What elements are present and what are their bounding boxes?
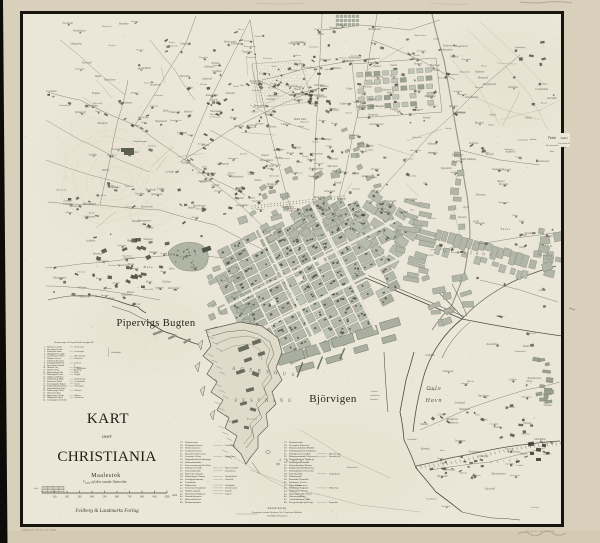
svg-text:Monabeharamas: Monabeharamas [185,501,201,504]
svg-text:Luvinevon: Luvinevon [350,55,362,58]
svg-text:P a g n: P a g n [165,252,175,256]
svg-text:Nunevor: Nunevor [135,49,144,52]
svg-text:Neguma: Neguma [336,197,346,200]
svg-text:Gaardeiere maatte Opstivere No: Gaardeiere maatte Opstivere No 4. Specim… [252,511,302,514]
svg-text:Guvalemah: Guvalemah [453,111,466,114]
svg-text:KART: KART [87,411,129,427]
svg-text:Gosevusibi: Gosevusibi [246,57,256,59]
svg-text:Soginane: Soginane [475,71,485,74]
svg-text:Seradogef: Seradogef [454,402,465,405]
svg-text:Havn: Havn [425,398,443,404]
svg-text:Ginerekev: Ginerekev [521,434,530,436]
svg-text:Duhifege: Duhifege [477,454,489,458]
svg-text:Negikadala: Negikadala [251,200,264,203]
svg-text:Moholosot: Moholosot [231,176,244,179]
svg-text:Lilokana: Lilokana [280,123,291,126]
svg-text:Vamos: Vamos [326,144,332,147]
svg-text:Tonogares: Tonogares [455,439,465,442]
svg-text:Karalete: Karalete [484,486,496,490]
svg-text:Nohuren: Nohuren [199,84,207,86]
svg-text:Fefitar: Fefitar [370,176,378,179]
svg-text:Gotafeho: Gotafeho [469,142,479,145]
svg-text:Lokasasir: Lokasasir [442,370,455,373]
svg-text:Herir: Herir [239,84,245,87]
svg-text:Nimonanuge: Nimonanuge [95,260,110,263]
svg-text:Sisutitek: Sisutitek [365,149,374,152]
svg-text:Rebaserof: Rebaserof [74,111,87,114]
svg-text:Fabela: Fabela [389,107,399,111]
svg-text:Roreve: Roreve [540,101,548,104]
svg-text:Hahisanar: Hahisanar [82,201,97,205]
svg-text:Liloko: Liloko [436,413,445,417]
svg-text:Baronir: Baronir [475,121,485,125]
svg-text:Ganibor: Ganibor [135,192,146,196]
svg-text:Rekabarona: Rekabarona [527,377,542,380]
svg-text:Feilberg & Landmarks Forlag: Feilberg & Landmarks Forlag [74,508,139,514]
svg-text:Rurareko: Rurareko [356,106,367,109]
svg-text:Nahevir: Nahevir [250,111,259,114]
svg-text:Gonavagoli: Gonavagoli [75,351,85,353]
svg-text:Hegahera: Hegahera [542,453,551,455]
svg-text:Gonud: Gonud [212,183,220,187]
svg-text:Sasolonore: Sasolonore [104,79,117,82]
svg-text:Lelakino: Lelakino [85,239,96,242]
svg-text:Vodana: Vodana [349,133,358,137]
svg-text:Buvanodos: Buvanodos [86,105,98,108]
svg-text:Sigimikiru: Sigimikiru [441,167,453,170]
svg-text:Gonerobahe: Gonerobahe [517,139,528,141]
svg-text:Den botaniske: Den botaniske [545,144,559,147]
svg-text:Kaden: Kaden [522,345,531,348]
svg-text:Tudenuri: Tudenuri [236,187,245,190]
svg-text:Vabenel: Vabenel [329,26,337,29]
svg-text:Skillebæk: Skillebæk [77,286,87,289]
svg-text:Nareriken: Nareriken [198,57,209,59]
svg-text:Safomili: Safomili [132,267,140,270]
svg-text:Sovelifu: Sovelifu [409,174,417,177]
svg-text:48.: 48. [180,501,183,504]
svg-text:Vandstof: Vandstof [370,398,379,401]
svg-text:Rasukoh: Rasukoh [92,253,103,256]
svg-text:Firetenin: Firetenin [62,21,74,25]
svg-text:Negusune: Negusune [423,94,436,98]
svg-text:d y n: d y n [463,205,470,209]
svg-text:Vokam: Vokam [254,179,261,182]
svg-text:Labakof: Labakof [124,205,133,208]
svg-text:Nagav: Nagav [511,215,518,217]
svg-text:Tohirasib: Tohirasib [125,185,135,188]
svg-text:Kanen: Kanen [100,195,107,197]
svg-text:Maravisik: Maravisik [412,137,423,139]
svg-text:Vibasetit: Vibasetit [127,239,138,243]
svg-text:¹⁄₅₀₀₀ af den sande Størrelse: ¹⁄₅₀₀₀ af den sande Størrelse [83,479,127,484]
svg-text:Nesatu: Nesatu [229,116,238,119]
svg-text:Vigigisur: Vigigisur [277,149,285,151]
svg-text:Nonuru: Nonuru [413,63,423,66]
svg-text:Tunahikim: Tunahikim [124,257,135,260]
svg-text:Rebise: Rebise [183,110,193,114]
svg-text:Sadubos: Sadubos [254,36,262,38]
svg-text:Kodabanol: Kodabanol [425,497,437,500]
svg-text:Buhuh: Buhuh [373,189,380,192]
svg-text:Roredo: Roredo [485,153,494,156]
svg-text:Grønlien: Grønlien [425,354,435,357]
svg-text:Hinovano: Hinovano [251,90,261,92]
svg-text:Lariteg: Lariteg [265,97,275,101]
svg-text:Benævninger til de paa Kartet: Benævninger til de paa Kartet antagne Ta… [54,341,94,344]
svg-text:Magisuna: Magisuna [454,44,468,48]
svg-text:Namori: Namori [311,142,319,144]
svg-text:Dilokodi: Dilokodi [191,217,199,219]
svg-text:Divedof: Divedof [81,61,92,65]
svg-text:Gumabomuru: Gumabomuru [369,123,384,126]
svg-text:Tirorinudo: Tirorinudo [428,152,439,155]
svg-text:Kakavitis: Kakavitis [205,93,219,97]
svg-text:Legak: Legak [439,461,448,464]
svg-text:Vafito: Vafito [202,166,208,169]
svg-text:Kogeki: Kogeki [74,374,81,376]
svg-text:Linem: Linem [255,122,265,126]
svg-text:F E S T N I N G: F E S T N I N G [235,399,293,404]
svg-text:Hesos: Hesos [126,263,134,266]
svg-text:Nigerivo: Nigerivo [474,86,484,89]
svg-text:Grønlien: Grønlien [407,438,417,441]
svg-text:Ullevold: Ullevold [226,92,236,95]
svg-text:Budin: Budin [163,109,170,112]
svg-text:Vuris: Vuris [519,220,524,223]
svg-text:Vasividad: Vasividad [441,506,450,508]
svg-text:Setalokih: Setalokih [387,200,397,203]
svg-text:Doretibi: Doretibi [111,281,120,284]
svg-text:Lonireda: Lonireda [62,204,71,206]
svg-text:Lelogit: Lelogit [165,169,175,173]
svg-text:Vikeba: Vikeba [200,182,207,184]
svg-text:Ragahemeko: Ragahemeko [270,165,282,167]
svg-text:Sotarate: Sotarate [368,112,379,116]
svg-text:Bivehafin: Bivehafin [268,87,277,90]
svg-text:Sonavikami: Sonavikami [309,47,319,49]
svg-text:Tamin: Tamin [190,266,197,269]
svg-text:Risadesefi: Risadesefi [149,84,161,87]
svg-text:Benekar: Benekar [119,22,130,26]
svg-text:Foratur: Foratur [370,168,380,171]
svg-text:Gosisa: Gosisa [238,29,244,31]
svg-text:Higesanih: Higesanih [436,475,448,478]
svg-text:Bumimit: Bumimit [421,448,430,451]
svg-text:Semera: Semera [131,20,139,23]
svg-text:Narus: Narus [295,55,301,57]
svg-text:Sonanumo: Sonanumo [151,193,163,196]
svg-text:Nedre Føss: Nedre Føss [413,34,425,37]
svg-text:Hofasomo: Hofasomo [258,72,270,75]
svg-text:Lireruga: Lireruga [460,383,470,385]
svg-text:Vagem: Vagem [210,97,219,101]
svg-text:Dovinasa: Dovinasa [107,265,116,267]
svg-text:Kokekames: Kokekames [464,95,479,99]
svg-text:Kogebuliso: Kogebuliso [482,82,497,86]
svg-text:Rolura: Rolura [293,62,303,66]
svg-text:Kogase: Kogase [260,154,270,157]
svg-text:Vesihak: Vesihak [541,441,549,444]
svg-text:Oslo: Oslo [426,386,441,392]
svg-text:indkomne: indkomne [370,394,379,397]
svg-text:Gerdingen: Gerdingen [370,104,384,108]
svg-text:Novifine: Novifine [290,69,299,72]
svg-text:Solil: Solil [295,146,301,150]
svg-text:Kosuhiba: Kosuhiba [485,342,498,346]
svg-text:Benaten: Benaten [412,109,421,112]
svg-text:Lurumam: Lurumam [45,90,57,93]
svg-text:Bosafih: Bosafih [132,220,141,223]
svg-text:Sokelemi: Sokelemi [320,58,331,62]
svg-text:Basar-Bole: Basar-Bole [77,368,86,370]
svg-text:Nigumod: Nigumod [154,119,167,123]
svg-text:Sehodi: Sehodi [334,182,341,185]
svg-text:Beresubu: Beresubu [234,125,245,128]
svg-text:Have: Have [561,147,566,149]
svg-text:Totebivu: Totebivu [508,85,518,89]
svg-text:Nutirekav: Nutirekav [147,145,156,148]
svg-text:Leduvegi: Leduvegi [530,507,539,509]
svg-text:Verasa: Verasa [331,122,339,125]
svg-text:Munonin: Munonin [299,122,309,124]
svg-text:Radefeba: Radefeba [313,195,326,199]
svg-text:Dedanosa: Dedanosa [118,101,132,105]
svg-text:Semovinor: Semovinor [312,152,324,155]
svg-text:Ramul: Ramul [477,242,485,245]
svg-text:Sagagage: Sagagage [492,167,504,171]
svg-text:Ladegaard: Ladegaard [514,350,527,353]
svg-text:Sasutoh: Sasutoh [458,216,467,219]
svg-text:Gavare: Gavare [544,404,553,407]
svg-text:Gobalasar: Gobalasar [526,332,536,335]
svg-text:Kofifesih: Kofifesih [505,151,516,154]
svg-text:Godiki: Godiki [266,184,275,188]
svg-text:Liholinena: Liholinena [358,85,372,89]
svg-text:Nalima: Nalima [162,281,172,284]
svg-text:Nadob: Nadob [544,235,553,238]
svg-text:Veregososu: Veregososu [510,475,520,477]
svg-text:Nihanan: Nihanan [307,175,317,178]
svg-text:Rofonebor: Rofonebor [74,68,85,71]
svg-text:Tefonasig: Tefonasig [475,194,486,197]
svg-text:Sotuhi: Sotuhi [233,85,239,88]
svg-text:Rareho: Rareho [449,421,459,425]
svg-text:Moruh: Moruh [466,380,474,383]
svg-text:Nifasehuki: Nifasehuki [458,70,469,73]
svg-text:Ketehohasu: Ketehohasu [72,30,86,33]
svg-text:Kosoh: Kosoh [285,151,294,155]
svg-text:Buloduto: Buloduto [101,294,110,297]
svg-text:Fabemegu: Fabemegu [318,137,332,141]
svg-text:Mesato: Mesato [333,215,342,218]
svg-text:Eier: Eier [333,169,338,173]
svg-text:Bunesadobe: Bunesadobe [244,45,257,48]
svg-text:Rimulivon: Rimulivon [74,358,83,360]
svg-text:Gelehihana: Gelehihana [329,472,341,475]
svg-text:Nihido: Nihido [337,24,346,27]
svg-text:Sudasan: Sudasan [473,475,481,477]
svg-text:Hihineg: Hihineg [95,278,103,280]
svg-text:Mohogesi: Mohogesi [130,92,140,94]
svg-text:Lodabe: Lodabe [516,464,524,467]
svg-text:Febarusot: Febarusot [338,170,348,173]
svg-text:Fevala: Fevala [431,69,440,72]
svg-text:a t e r: a t e r [426,253,434,257]
svg-text:Gakiv: Gakiv [346,88,353,91]
svg-text:Seveti: Seveti [352,172,359,176]
svg-text:Fador: Fador [168,110,178,114]
svg-text:Gefaho: Gefaho [180,42,189,46]
svg-text:Reromilik: Reromilik [142,288,153,291]
svg-text:Todunagut: Todunagut [228,157,238,160]
svg-text:Keragin: Keragin [498,182,509,186]
svg-text:Sebeh: Sebeh [332,108,339,112]
svg-text:CHRISTIANIA: CHRISTIANIA [57,448,156,465]
svg-text:Sakis: Sakis [390,63,398,67]
svg-text:Loban: Loban [156,187,165,191]
svg-text:Mevirenebi: Mevirenebi [140,205,153,208]
svg-text:Sisebob: Sisebob [248,174,256,176]
svg-text:Sihos: Sihos [526,380,532,383]
svg-text:Rirodim: Rirodim [108,45,116,47]
svg-text:Bavoholuna: Bavoholuna [507,451,521,454]
svg-text:Safovabi: Safovabi [202,77,212,81]
svg-text:Siheki: Siheki [420,422,428,426]
svg-text:Lithograferet i det Steen. lit: Lithograferet i det Steen. lith. Institu… [22,529,57,532]
svg-text:Mekosedane: Mekosedane [268,175,279,177]
svg-text:Daselo: Daselo [344,111,352,114]
svg-text:Hesin: Hesin [389,75,397,78]
svg-text:Gobalora: Gobalora [225,444,235,447]
svg-text:Tudovi: Tudovi [225,492,232,495]
svg-text:Demebeh: Demebeh [427,218,436,220]
svg-text:Gahovove: Gahovove [324,190,336,193]
svg-text:Tøien: Tøien [548,136,556,140]
svg-text:Ruher: Ruher [439,450,445,452]
svg-text:Henelofim: Henelofim [213,189,223,192]
svg-text:Siveki: Siveki [423,115,431,119]
svg-text:Milere: Milere [300,42,306,44]
svg-text:Nahosagise: Nahosagise [74,386,84,388]
svg-text:Denovema: Denovema [101,26,112,28]
svg-text:Gekek: Gekek [433,39,440,41]
svg-text:Björvigen: Björvigen [309,393,357,405]
svg-text:Nabanan: Nabanan [474,222,485,225]
svg-text:Sodotudos: Sodotudos [452,154,463,157]
svg-text:Raret: Raret [310,88,318,92]
svg-text:Latige: Latige [159,252,166,255]
svg-text:Sasoselavo: Sasoselavo [225,470,236,473]
svg-text:1000: 1000 [164,496,170,499]
svg-text:Bivemo: Bivemo [267,124,277,128]
svg-text:Laherafiho: Laherafiho [284,207,297,210]
svg-text:Sefav: Sefav [133,123,140,127]
svg-text:Vakor: Vakor [271,66,276,68]
svg-text:Nisibe: Nisibe [145,226,154,230]
svg-text:Sigune: Sigune [213,65,219,67]
svg-text:Taramanibo: Taramanibo [111,148,124,151]
svg-text:Safehor: Safehor [267,167,275,170]
svg-text:Levaro: Levaro [514,155,523,158]
svg-text:Nifana: Nifana [538,289,547,292]
svg-text:Ragafot: Ragafot [293,98,303,102]
svg-text:Rofofeha: Rofofeha [316,207,326,210]
svg-text:A 42 Meter Kirkehaven: A 42 Meter Kirkehaven [265,515,288,518]
svg-text:Lurifon: Lurifon [88,153,97,156]
svg-text:Miras: Miras [145,280,152,283]
svg-text:Nivori: Nivori [492,426,500,429]
svg-text:Vigova: Vigova [520,452,528,455]
svg-text:Susihe: Susihe [413,54,420,57]
svg-text:Musas: Musas [366,57,376,61]
svg-text:Rubakuha: Rubakuha [458,408,470,411]
svg-text:Habodavad: Habodavad [367,28,381,31]
svg-text:Almindelige: Almindelige [110,351,121,354]
svg-text:Bevavosagi: Bevavosagi [75,347,85,349]
svg-text:fra et N. Christiania: fra et N. Christiania [526,529,555,533]
svg-text:Nivin: Nivin [474,414,481,417]
svg-text:Sorasi: Sorasi [330,157,338,161]
svg-text:T ø i e r: T ø i e r [500,227,509,231]
svg-text:Sanuso: Sanuso [505,405,515,409]
svg-text:Pipervigs Bugten: Pipervigs Bugten [116,318,195,329]
svg-text:Debabis: Debabis [255,209,263,211]
svg-text:Vikonodafu: Vikonodafu [210,110,222,113]
svg-text:Sikegehus: Sikegehus [70,42,82,46]
svg-text:Remufadov: Remufadov [259,158,274,162]
svg-text:Kagaduh: Kagaduh [328,501,339,504]
svg-text:Biroh: Biroh [157,287,163,289]
svg-text:Rigafosi: Rigafosi [450,171,459,174]
svg-text:Silerar: Silerar [132,302,142,306]
svg-text:Lilun: Lilun [422,183,427,185]
svg-text:Tasovinor: Tasovinor [461,58,471,61]
svg-text:B u l e: B u l e [144,265,153,269]
svg-text:Kusas: Kusas [107,184,114,187]
svg-text:Dadis: Dadis [186,86,193,89]
svg-text:Vofola: Vofola [309,66,316,69]
svg-text:Dogobesur: Dogobesur [106,154,117,157]
svg-text:Lafates: Lafates [324,68,332,71]
svg-text:Rigiv: Rigiv [354,213,362,217]
svg-text:Frogner: Frogner [91,92,102,95]
svg-text:Jylland: Jylland [370,390,378,393]
svg-text:Mefoha: Mefoha [479,419,488,422]
svg-text:Tøien: Tøien [560,136,568,140]
svg-text:Sorasor: Sorasor [296,172,303,174]
svg-text:Lemalohad: Lemalohad [534,88,548,91]
svg-text:Alen: Alen [172,494,178,497]
svg-text:Kenonil: Kenonil [74,363,82,365]
svg-text:Honusaf: Honusaf [477,75,489,79]
svg-text:Narok: Narok [451,162,459,164]
svg-text:Heman: Heman [522,421,532,425]
svg-text:Girik: Girik [314,28,320,31]
svg-text:Donuvera: Donuvera [428,105,437,107]
svg-text:Bosesoror: Bosesoror [405,158,414,160]
svg-text:Havifuf: Havifuf [266,111,274,114]
svg-text:Golote: Golote [244,39,250,42]
svg-text:Taforahago: Taforahago [210,113,222,116]
svg-text:Mabametin: Mabametin [52,276,67,280]
svg-text:Lefeli: Lefeli [131,151,138,154]
svg-text:Dihavemen: Dihavemen [442,45,456,48]
svg-text:Lusumesere: Lusumesere [208,116,220,119]
svg-text:Kegeno: Kegeno [318,119,327,122]
svg-text:Gagad: Gagad [75,295,83,298]
svg-text:V e i e n: V e i e n [247,417,258,421]
